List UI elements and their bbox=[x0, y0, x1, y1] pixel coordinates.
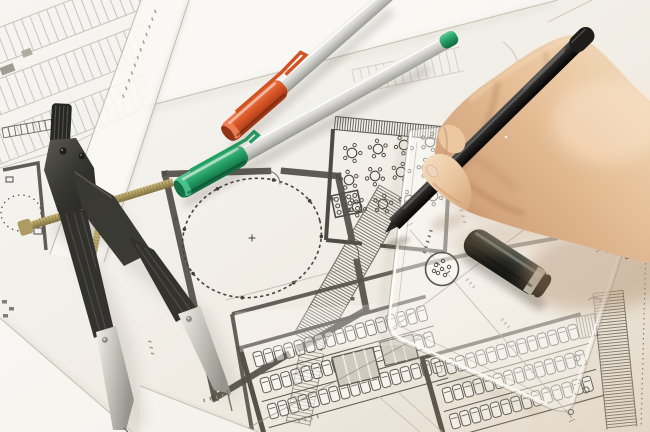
photo-architect-drafting: Close-up photo of an architect's workspa… bbox=[0, 0, 650, 432]
circle-dot bbox=[183, 227, 187, 231]
logo-stamp bbox=[426, 253, 459, 286]
photo-figure: Close-up photo of an architect's workspa… bbox=[0, 0, 650, 432]
circle-dot bbox=[272, 178, 276, 182]
photo-canvas bbox=[0, 0, 650, 432]
dust-speck bbox=[505, 136, 508, 139]
circle-dot bbox=[308, 199, 312, 203]
circle-dot bbox=[320, 235, 324, 239]
circle-dot bbox=[191, 272, 195, 276]
